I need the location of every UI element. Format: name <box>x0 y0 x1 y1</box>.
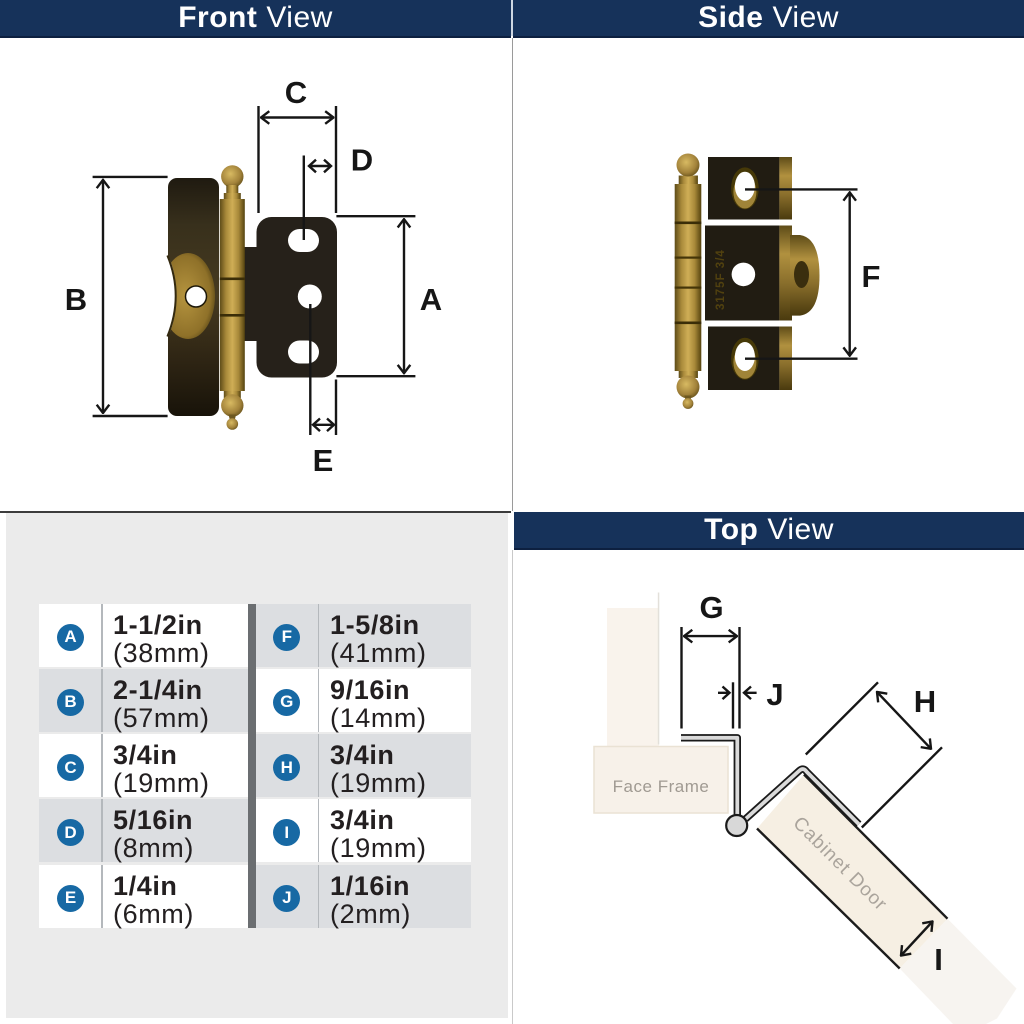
svg-text:C: C <box>285 75 307 110</box>
svg-text:F: F <box>862 259 881 294</box>
svg-text:E: E <box>313 443 334 478</box>
svg-text:3175F 3/4: 3175F 3/4 <box>715 249 727 310</box>
svg-text:G: G <box>699 590 723 625</box>
svg-text:A: A <box>420 282 442 317</box>
svg-text:H: H <box>914 684 936 719</box>
svg-text:Face Frame: Face Frame <box>613 777 710 796</box>
svg-text:B: B <box>65 282 87 317</box>
svg-text:D: D <box>351 143 373 178</box>
svg-text:I: I <box>934 942 943 977</box>
svg-text:J: J <box>766 677 783 712</box>
